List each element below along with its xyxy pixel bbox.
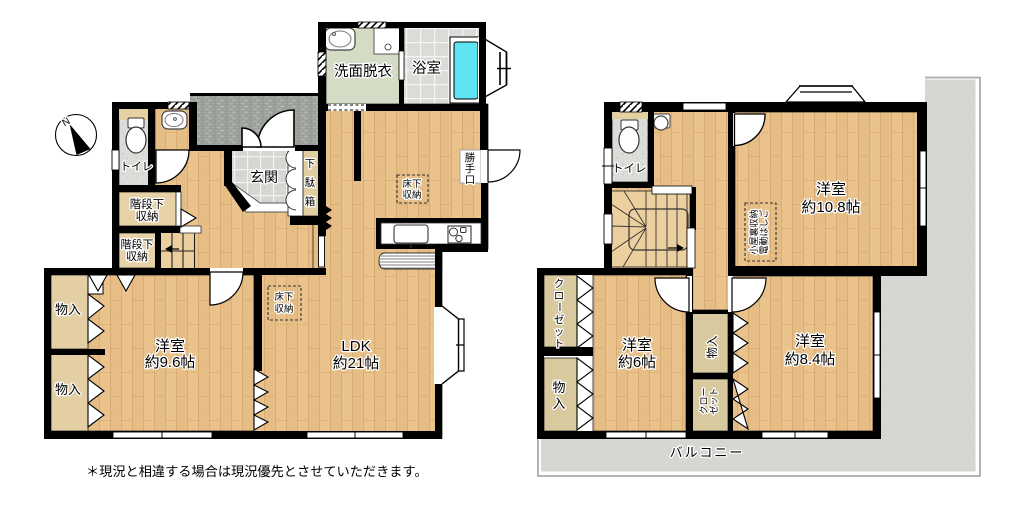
svg-text:ロ: ロ (554, 290, 565, 302)
svg-text:ゼット: ゼット (708, 387, 719, 414)
svg-text:玄関: 玄関 (250, 169, 278, 185)
svg-text:洗面脱衣: 洗面脱衣 (334, 63, 392, 80)
svg-text:約10.8帖: 約10.8帖 (801, 199, 860, 216)
svg-text:洋室: 洋室 (622, 337, 652, 354)
svg-text:ッ: ッ (554, 326, 565, 338)
svg-text:浴室: 浴室 (412, 60, 441, 77)
svg-text:トイレ: トイレ (120, 161, 153, 173)
svg-text:クロー: クロー (699, 387, 709, 414)
svg-text:約9.6帖: 約9.6帖 (145, 354, 196, 371)
svg-text:バルコニー: バルコニー (670, 445, 745, 460)
svg-text:洋室: 洋室 (795, 333, 825, 350)
svg-text:物: 物 (552, 380, 565, 395)
svg-text:箱: 箱 (305, 195, 316, 208)
svg-text:口: 口 (465, 174, 476, 186)
svg-text:収納: 収納 (274, 303, 293, 315)
svg-text:トイレ: トイレ (612, 163, 647, 175)
svg-text:物入: 物入 (55, 302, 81, 317)
svg-text:LDK: LDK (341, 338, 370, 355)
svg-text:ク: ク (554, 278, 565, 290)
svg-text:収納: 収納 (126, 250, 148, 263)
svg-text:ト: ト (554, 338, 565, 350)
svg-text:電動はしご: 電動はしご (758, 209, 769, 254)
svg-text:下: 下 (305, 158, 316, 170)
svg-text:物入: 物入 (705, 335, 719, 358)
svg-text:収納: 収納 (136, 210, 159, 223)
svg-text:床下: 床下 (402, 178, 421, 190)
svg-text:物入: 物入 (55, 382, 81, 397)
svg-text:洋室: 洋室 (155, 338, 185, 355)
svg-text:階段下: 階段下 (121, 237, 154, 251)
svg-text:約21帖: 約21帖 (333, 355, 380, 372)
svg-text:ゼ: ゼ (554, 314, 565, 326)
svg-text:洋室: 洋室 (816, 181, 846, 198)
svg-text:約6帖: 約6帖 (618, 354, 656, 371)
svg-text:階段下: 階段下 (130, 197, 165, 211)
svg-text:小屋裏収納: 小屋裏収納 (748, 209, 759, 254)
svg-text:ー: ー (553, 302, 565, 313)
svg-text:＊現況と相違する場合は現況優先とさせていただきます。: ＊現況と相違する場合は現況優先とさせていただきます。 (86, 464, 428, 479)
svg-text:床下: 床下 (274, 291, 293, 303)
svg-text:約8.4帖: 約8.4帖 (785, 351, 836, 368)
svg-text:入: 入 (552, 396, 565, 411)
svg-text:駄: 駄 (305, 176, 316, 189)
svg-text:収納: 収納 (402, 189, 421, 201)
